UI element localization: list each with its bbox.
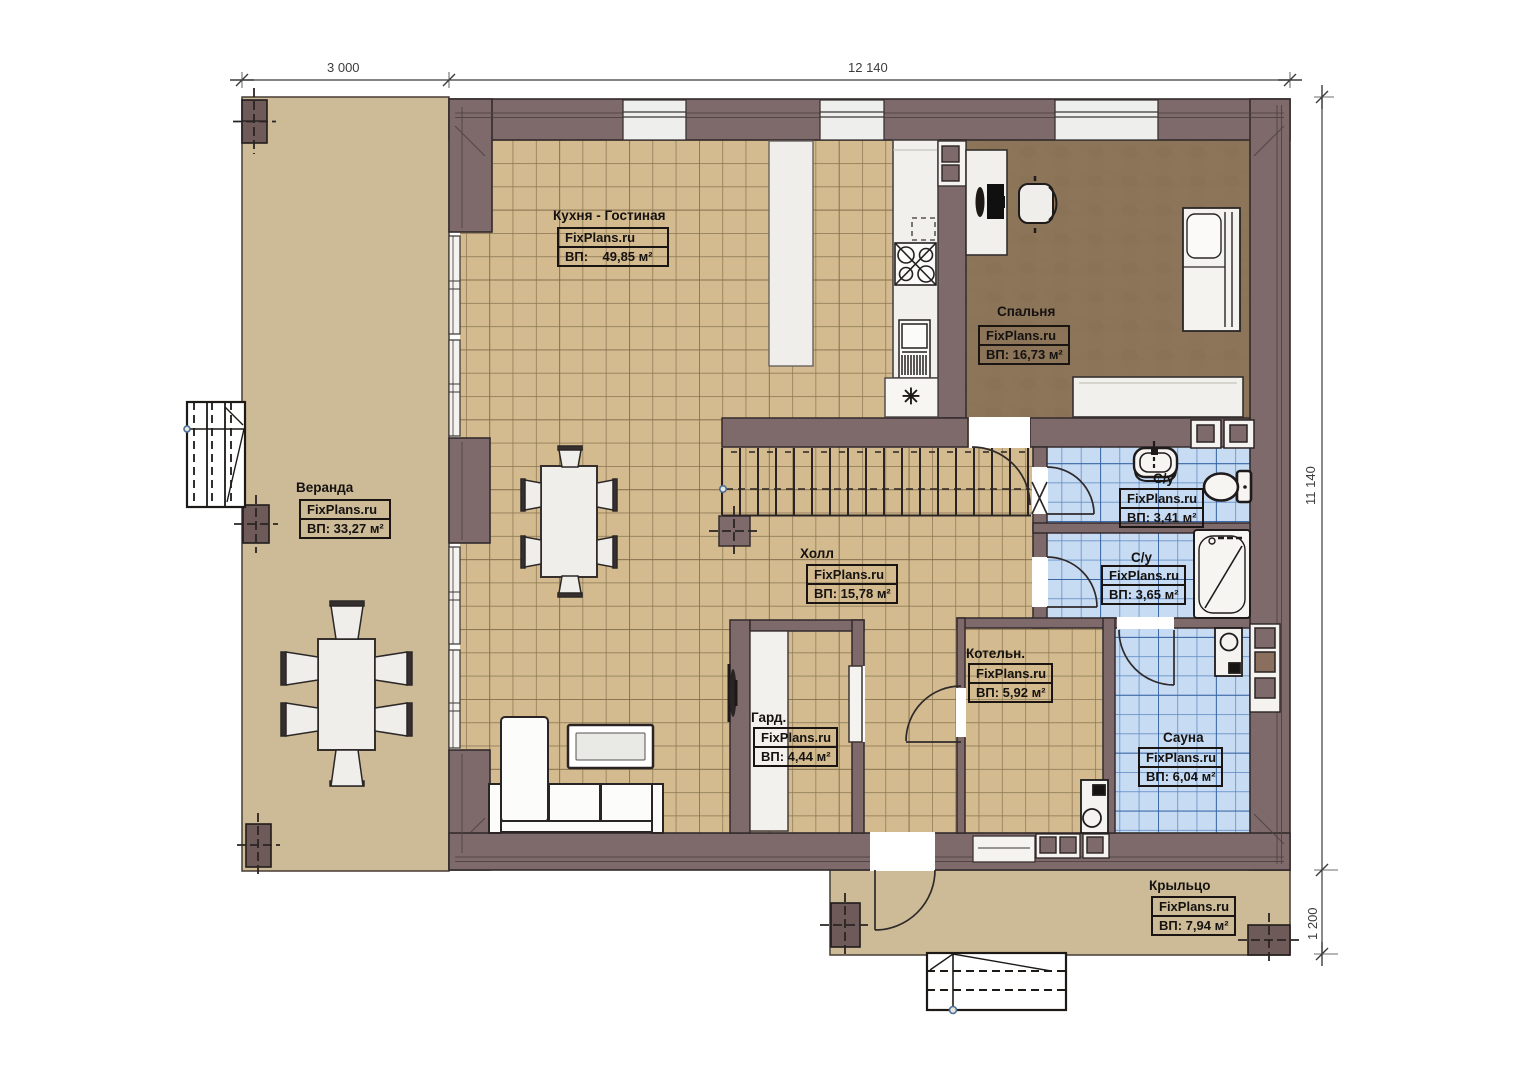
svg-text:✳: ✳ bbox=[902, 384, 920, 409]
